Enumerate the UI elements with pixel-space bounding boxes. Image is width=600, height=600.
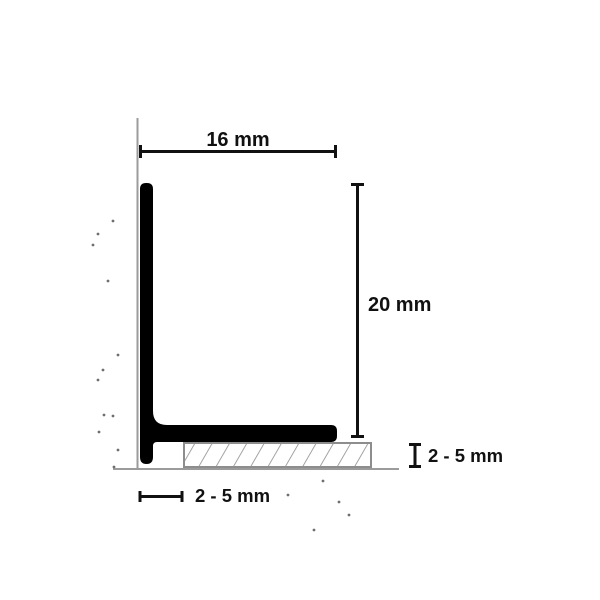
tile-section bbox=[184, 443, 371, 467]
profile-diagram bbox=[0, 0, 600, 600]
dimension-label-tile-thickness: 2 - 5 mm bbox=[428, 447, 503, 466]
dimension-label-wall-gap: 2 - 5 mm bbox=[195, 487, 270, 506]
dimension-tile-thickness bbox=[409, 445, 421, 467]
l-profile-shape bbox=[140, 183, 337, 464]
dimension-label-right-height: 20 mm bbox=[368, 295, 431, 315]
diagram-canvas: 16 mm 20 mm 2 - 5 mm 2 - 5 mm bbox=[0, 0, 600, 600]
dimension-right-height bbox=[351, 185, 364, 438]
tile-hatch-fill bbox=[185, 444, 370, 466]
dimension-wall-gap bbox=[139, 491, 183, 502]
dimension-label-top-width: 16 mm bbox=[139, 130, 337, 150]
